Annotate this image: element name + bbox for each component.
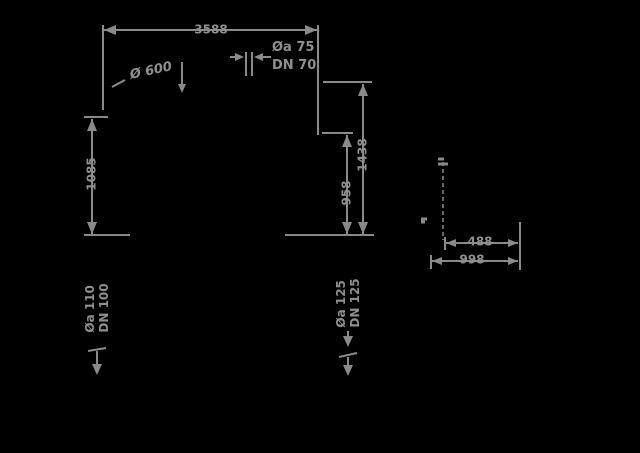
arrowhead-down: [342, 222, 352, 234]
arrowhead-left: [432, 257, 442, 265]
outlet-pipe-label-line1: Øa 125: [334, 278, 348, 327]
technical-drawing-canvas: 3588 1085 958 1438 Øa 75 DN 70 Ø 600 488…: [0, 0, 640, 453]
vent-pipe-feature: [230, 52, 271, 76]
inlet-pipe-label-line1: Øa 110: [83, 283, 97, 332]
detail-outer-width-dim-label: 998: [459, 254, 484, 267]
arrowhead-up: [342, 135, 352, 147]
outlet-pipe-label-line2: DN 125: [348, 278, 362, 327]
inlet-pipe-label: Øa 110 DN 100: [83, 283, 111, 332]
flow-tick: [339, 353, 357, 357]
arrowhead-left: [254, 53, 263, 61]
left-height-dim-label: 1085: [86, 157, 99, 190]
outlet-pipe-label: Øa 125 DN 125: [334, 278, 362, 327]
arrowhead-down: [87, 222, 97, 234]
arrowhead-left: [104, 25, 116, 35]
drawing-linework: [0, 0, 640, 453]
top-width-dim-label: 3588: [194, 24, 227, 37]
flow-tick: [88, 348, 106, 351]
inlet-pipe-label-line2: DN 100: [97, 283, 111, 332]
leader-tick-left: [112, 80, 125, 87]
detail-width-dim-label: 488: [467, 236, 492, 249]
inlet-flow-arrow: [88, 348, 106, 375]
outer-right-height-dim-label: 1438: [357, 138, 370, 171]
vent-pipe-label-line2: DN 70: [272, 59, 316, 72]
inner-right-height-dim-label: 958: [341, 180, 354, 205]
arrowhead-down: [343, 336, 353, 347]
arrowhead-down: [343, 365, 353, 376]
outlet-flow-arrows: [339, 331, 357, 376]
arrowhead-down: [178, 84, 186, 93]
arrowhead-down: [358, 222, 368, 234]
arrowhead-right: [235, 53, 244, 61]
arrowhead-right: [305, 25, 317, 35]
arrowhead-down: [92, 364, 102, 375]
arrowhead-up: [87, 119, 97, 131]
vent-pipe-label-line1: Øa 75: [272, 41, 314, 54]
arrowhead-up: [358, 84, 368, 96]
arrowhead-right: [508, 257, 518, 265]
arrowhead-left: [446, 239, 456, 247]
arrowhead-right: [508, 239, 518, 247]
